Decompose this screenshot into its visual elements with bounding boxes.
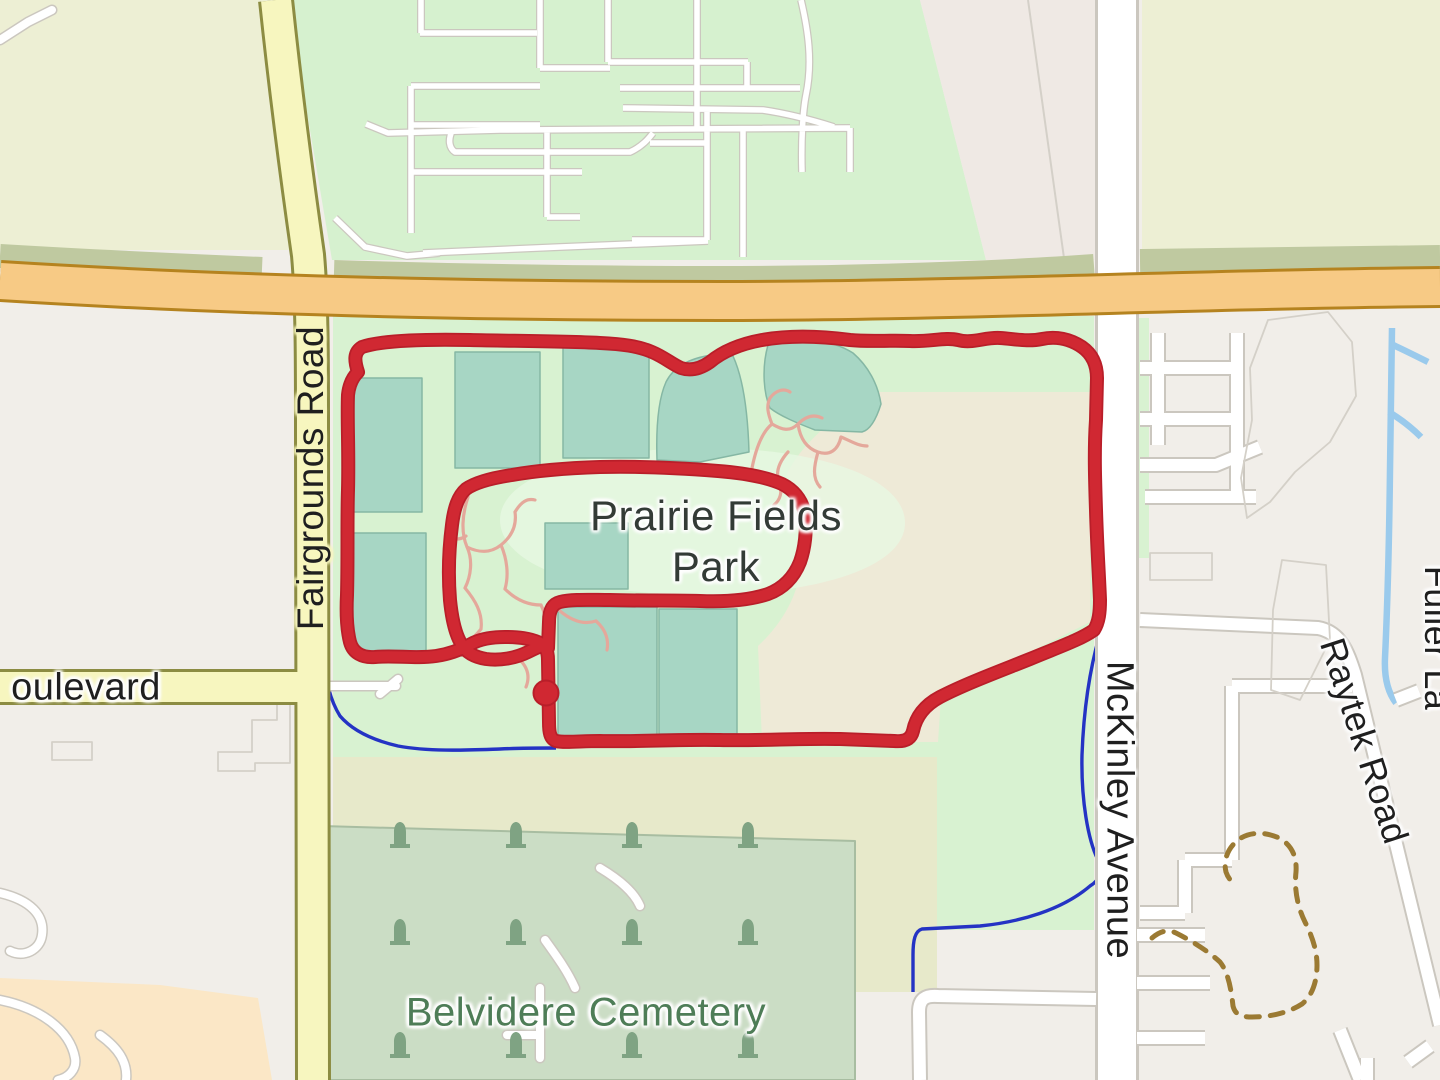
map-canvas[interactable]: Prairie Fields Park Belvidere Cemetery F… bbox=[0, 0, 1440, 1080]
scrub-band-2 bbox=[855, 845, 937, 992]
map-image bbox=[0, 0, 1440, 1080]
park-sliver-east bbox=[1139, 318, 1149, 558]
field-area-topright bbox=[1142, 0, 1440, 272]
fairground-area-topleft bbox=[0, 0, 305, 250]
gps-route-start-marker bbox=[534, 681, 559, 706]
road-fill-orange bbox=[0, 281, 1440, 301]
